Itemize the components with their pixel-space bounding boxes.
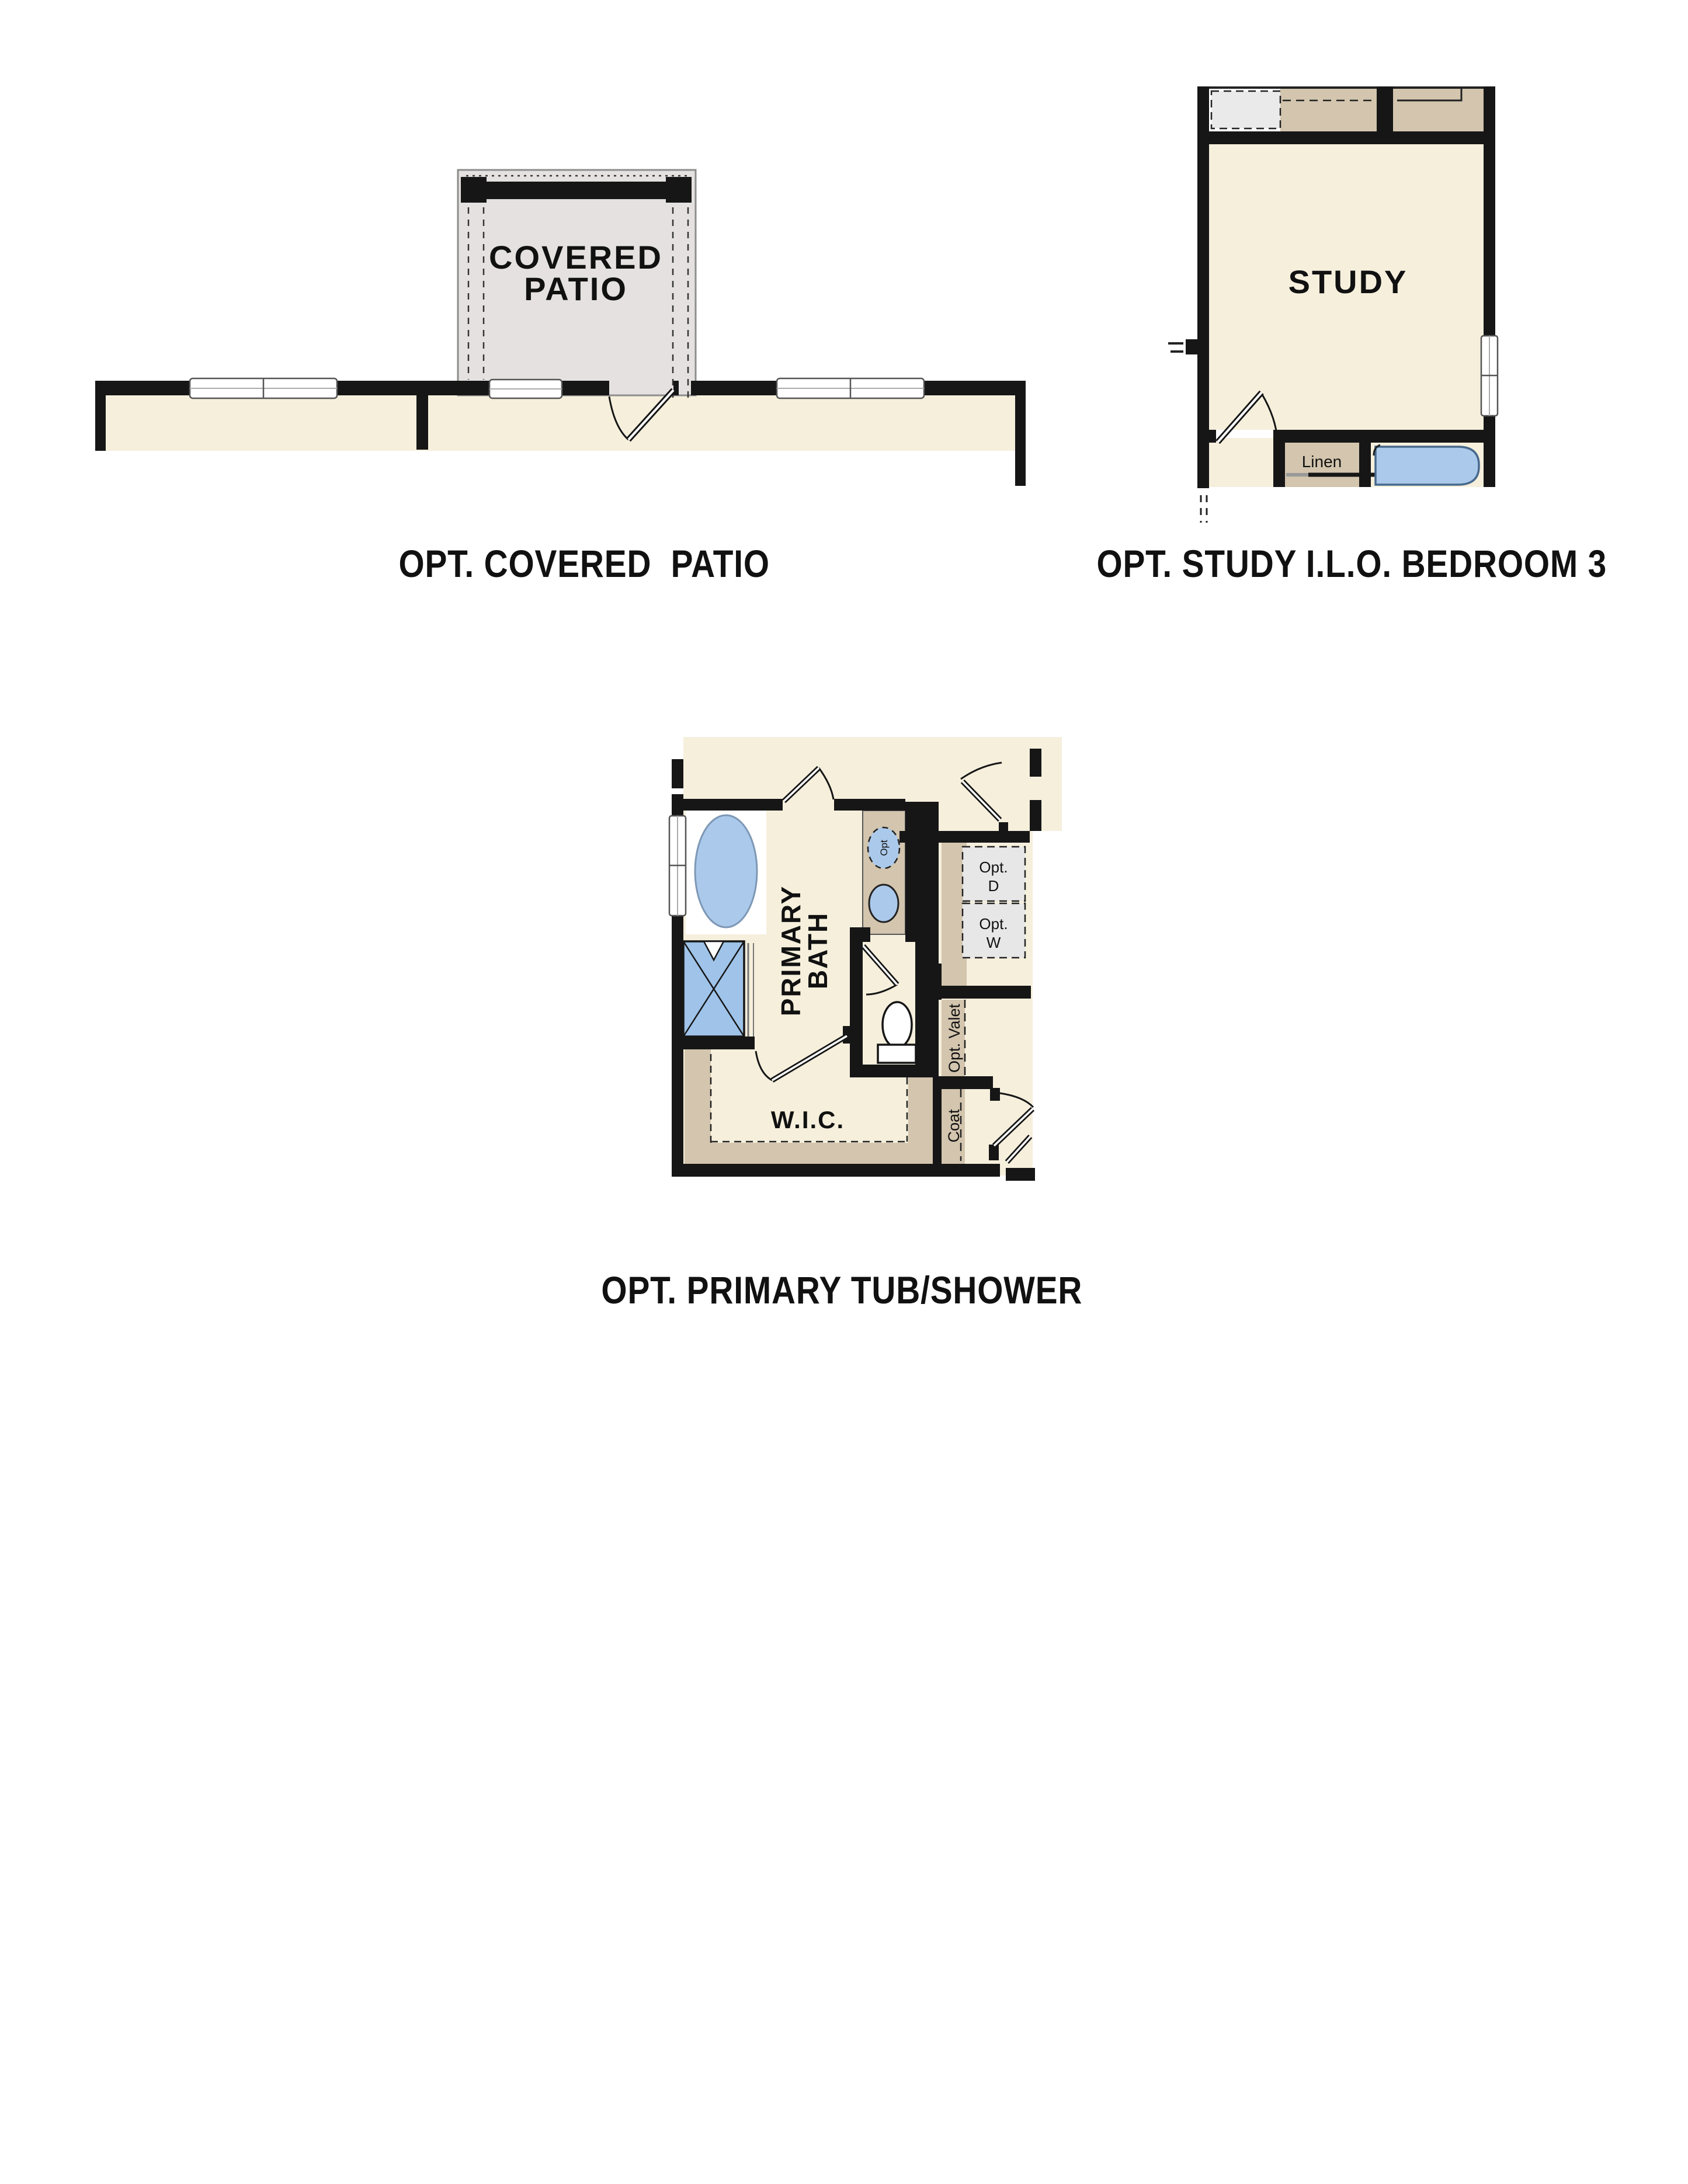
freestanding-tub — [695, 815, 757, 927]
wall-continuation-dashes — [1201, 495, 1207, 523]
window-left — [190, 378, 337, 398]
primary-bath-label-line1: PRIMARY — [776, 885, 806, 1016]
opt-d-line1: Opt. — [979, 858, 1008, 876]
right-wall-stub-a — [1030, 749, 1041, 777]
top-wall-left — [683, 799, 783, 811]
bath-window — [669, 816, 686, 916]
wc-bottom-wall — [850, 1065, 915, 1077]
opt-w-line2: W — [987, 934, 1001, 951]
patio-plan-windows — [190, 378, 924, 398]
coat-label: Coat — [945, 1109, 963, 1143]
opt-w-line1: Opt. — [979, 915, 1008, 933]
study-window — [1481, 336, 1498, 416]
bottom-wall — [672, 1164, 1000, 1177]
shower — [683, 941, 753, 1037]
primary-bath-caption: OPT. PRIMARY TUB/SHOWER — [601, 1269, 1082, 1312]
optional-dryer-box: Opt. D — [963, 847, 1025, 901]
closet-door-post-b — [989, 1145, 999, 1160]
patio-plan-interior-floor — [106, 395, 1016, 451]
laundry-bottom-wall — [939, 986, 1031, 999]
valet-top-wall-stub — [933, 964, 942, 1000]
shower-south-wall — [672, 1037, 755, 1049]
coat-left-wall — [933, 1076, 942, 1164]
patio-post-right — [666, 177, 692, 203]
window-patio — [489, 380, 562, 398]
floorplan-options-sheet: COVERED PATIO OPT. COVERED PATIO — [0, 0, 1688, 2184]
valet-bottom-wall — [933, 1076, 993, 1089]
linen-left-partition — [1273, 430, 1285, 487]
optional-cabinet-dashed-box — [1211, 91, 1280, 128]
vanity-chase-wall — [905, 802, 939, 942]
linen-right-partition — [1359, 430, 1371, 487]
exterior-fixture — [1168, 339, 1200, 354]
patio-beam — [463, 182, 689, 199]
left-wall-above-window — [672, 811, 683, 816]
upper-left-wall-stub-a — [672, 759, 683, 788]
linen-label: Linen — [1302, 453, 1342, 471]
covered-patio-room-label-line2: PATIO — [524, 270, 628, 307]
primary-bath-label-line2: BATH — [803, 912, 833, 989]
bathtub — [1374, 445, 1479, 485]
closet-bottom-wall — [1197, 131, 1495, 144]
wc-chase-wall — [915, 942, 939, 1077]
sink — [869, 885, 898, 922]
floorplan-canvas: COVERED PATIO OPT. COVERED PATIO — [0, 0, 1688, 2184]
wic-label: W.I.C. — [771, 1106, 845, 1133]
wc-top-wall — [850, 927, 870, 942]
patio-screen-hatch-right — [673, 207, 688, 398]
interior-partition-wall — [416, 381, 428, 450]
covered-patio-caption: OPT. COVERED PATIO — [398, 542, 769, 586]
wc-left-wall — [850, 942, 863, 1077]
right-wall-stub-b — [1030, 800, 1041, 831]
bedroom-wall — [899, 831, 1030, 843]
bedroom-door-hinge-post — [999, 822, 1008, 832]
upper-left-wall-stub-b — [672, 794, 683, 811]
patio-post-left — [461, 177, 487, 203]
bottom-wall-right-piece — [1006, 1168, 1035, 1181]
bottom-wall — [1273, 430, 1495, 443]
closet-door-post-a — [990, 1088, 1000, 1101]
study-room-label: STUDY — [1288, 263, 1408, 300]
vanity: Opt — [863, 811, 905, 934]
right-wall-upper — [1484, 86, 1495, 336]
right-wall-lower — [1484, 416, 1495, 487]
study-caption: OPT. STUDY I.L.O. BEDROOM 3 — [1096, 542, 1607, 586]
opt-d-line2: D — [988, 877, 999, 895]
study-plan: Linen STUDY OPT. STUDY I.L.O. BEDROOM 3 — [1096, 86, 1607, 586]
left-wall-lower-stub — [1197, 438, 1209, 488]
optional-sink-label: Opt — [878, 840, 890, 856]
optional-washer-box: Opt. W — [963, 903, 1025, 958]
top-wall-right — [834, 799, 905, 811]
right-end-wall — [1015, 381, 1026, 486]
valet-label: Opt. Valet — [946, 1003, 963, 1073]
window-right — [777, 378, 924, 398]
left-end-wall — [95, 381, 106, 451]
covered-patio-plan: COVERED PATIO OPT. COVERED PATIO — [95, 170, 1026, 586]
primary-bath-plan: Opt Opt. D Opt. W Opt. Valet Coat — [601, 737, 1082, 1312]
